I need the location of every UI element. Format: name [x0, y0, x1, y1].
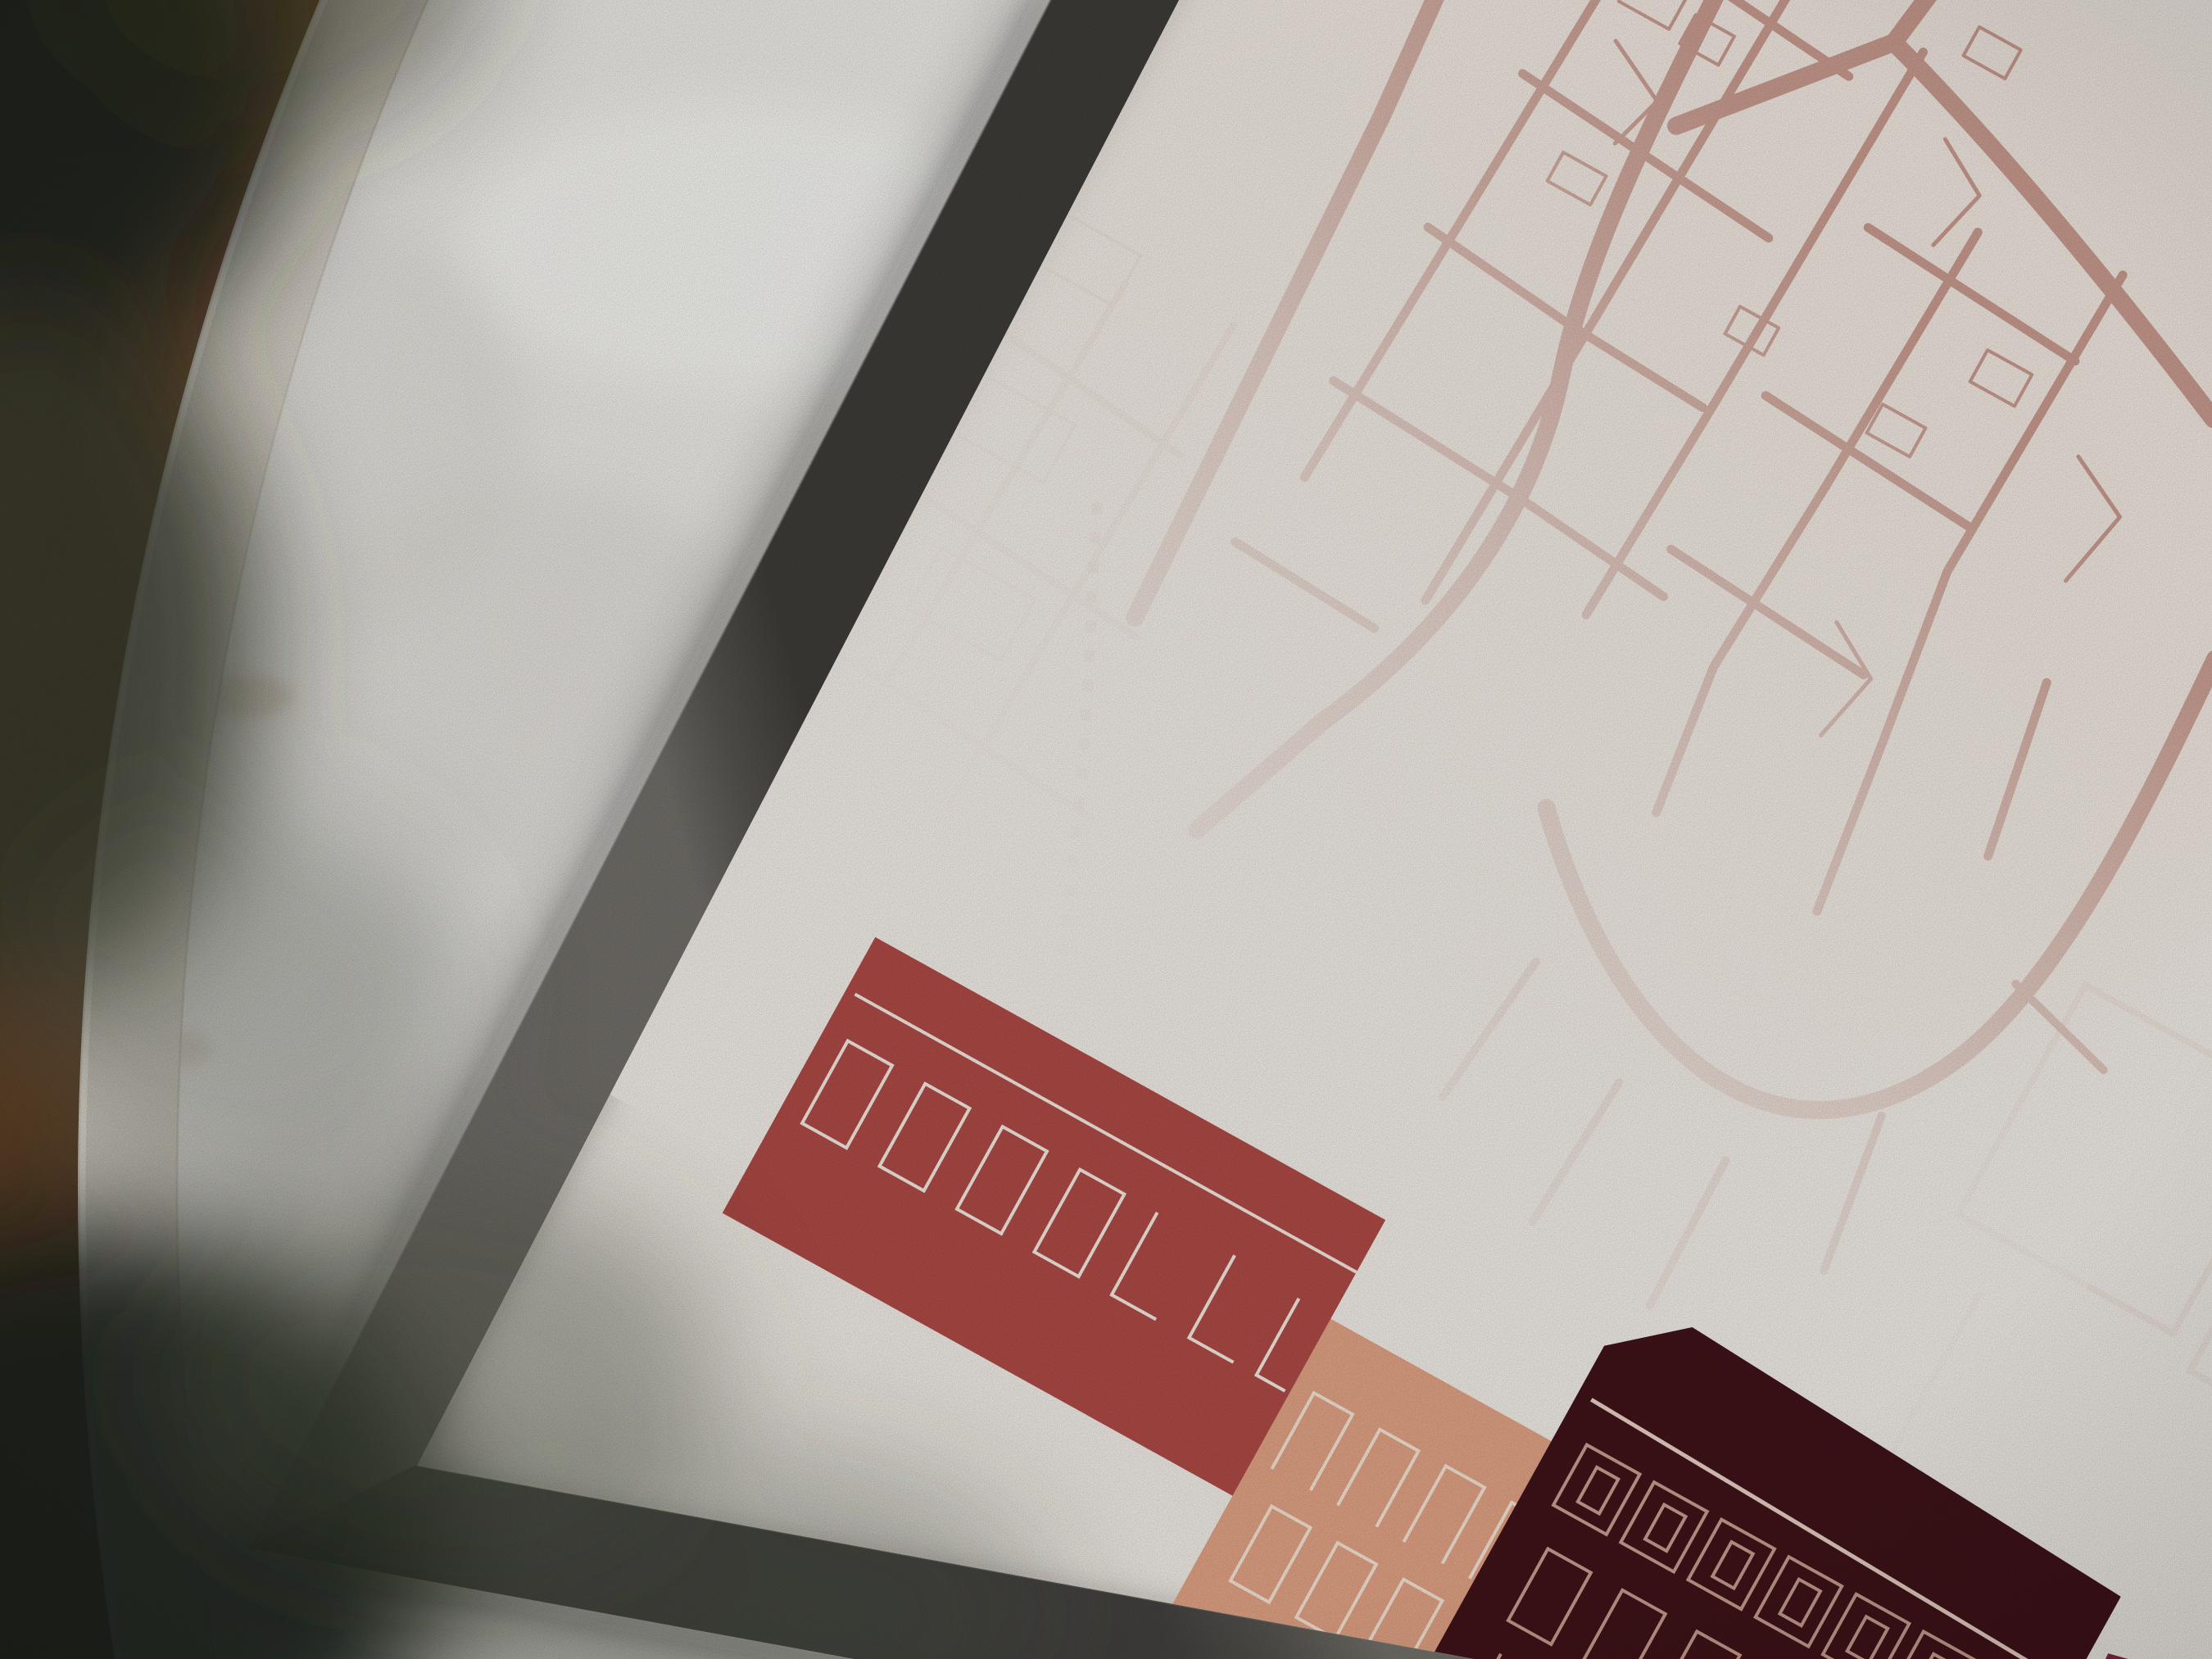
poster-mockup-photo — [0, 0, 2212, 1659]
vignette-overlay — [0, 0, 2212, 1659]
photo-stage — [0, 0, 2212, 1659]
